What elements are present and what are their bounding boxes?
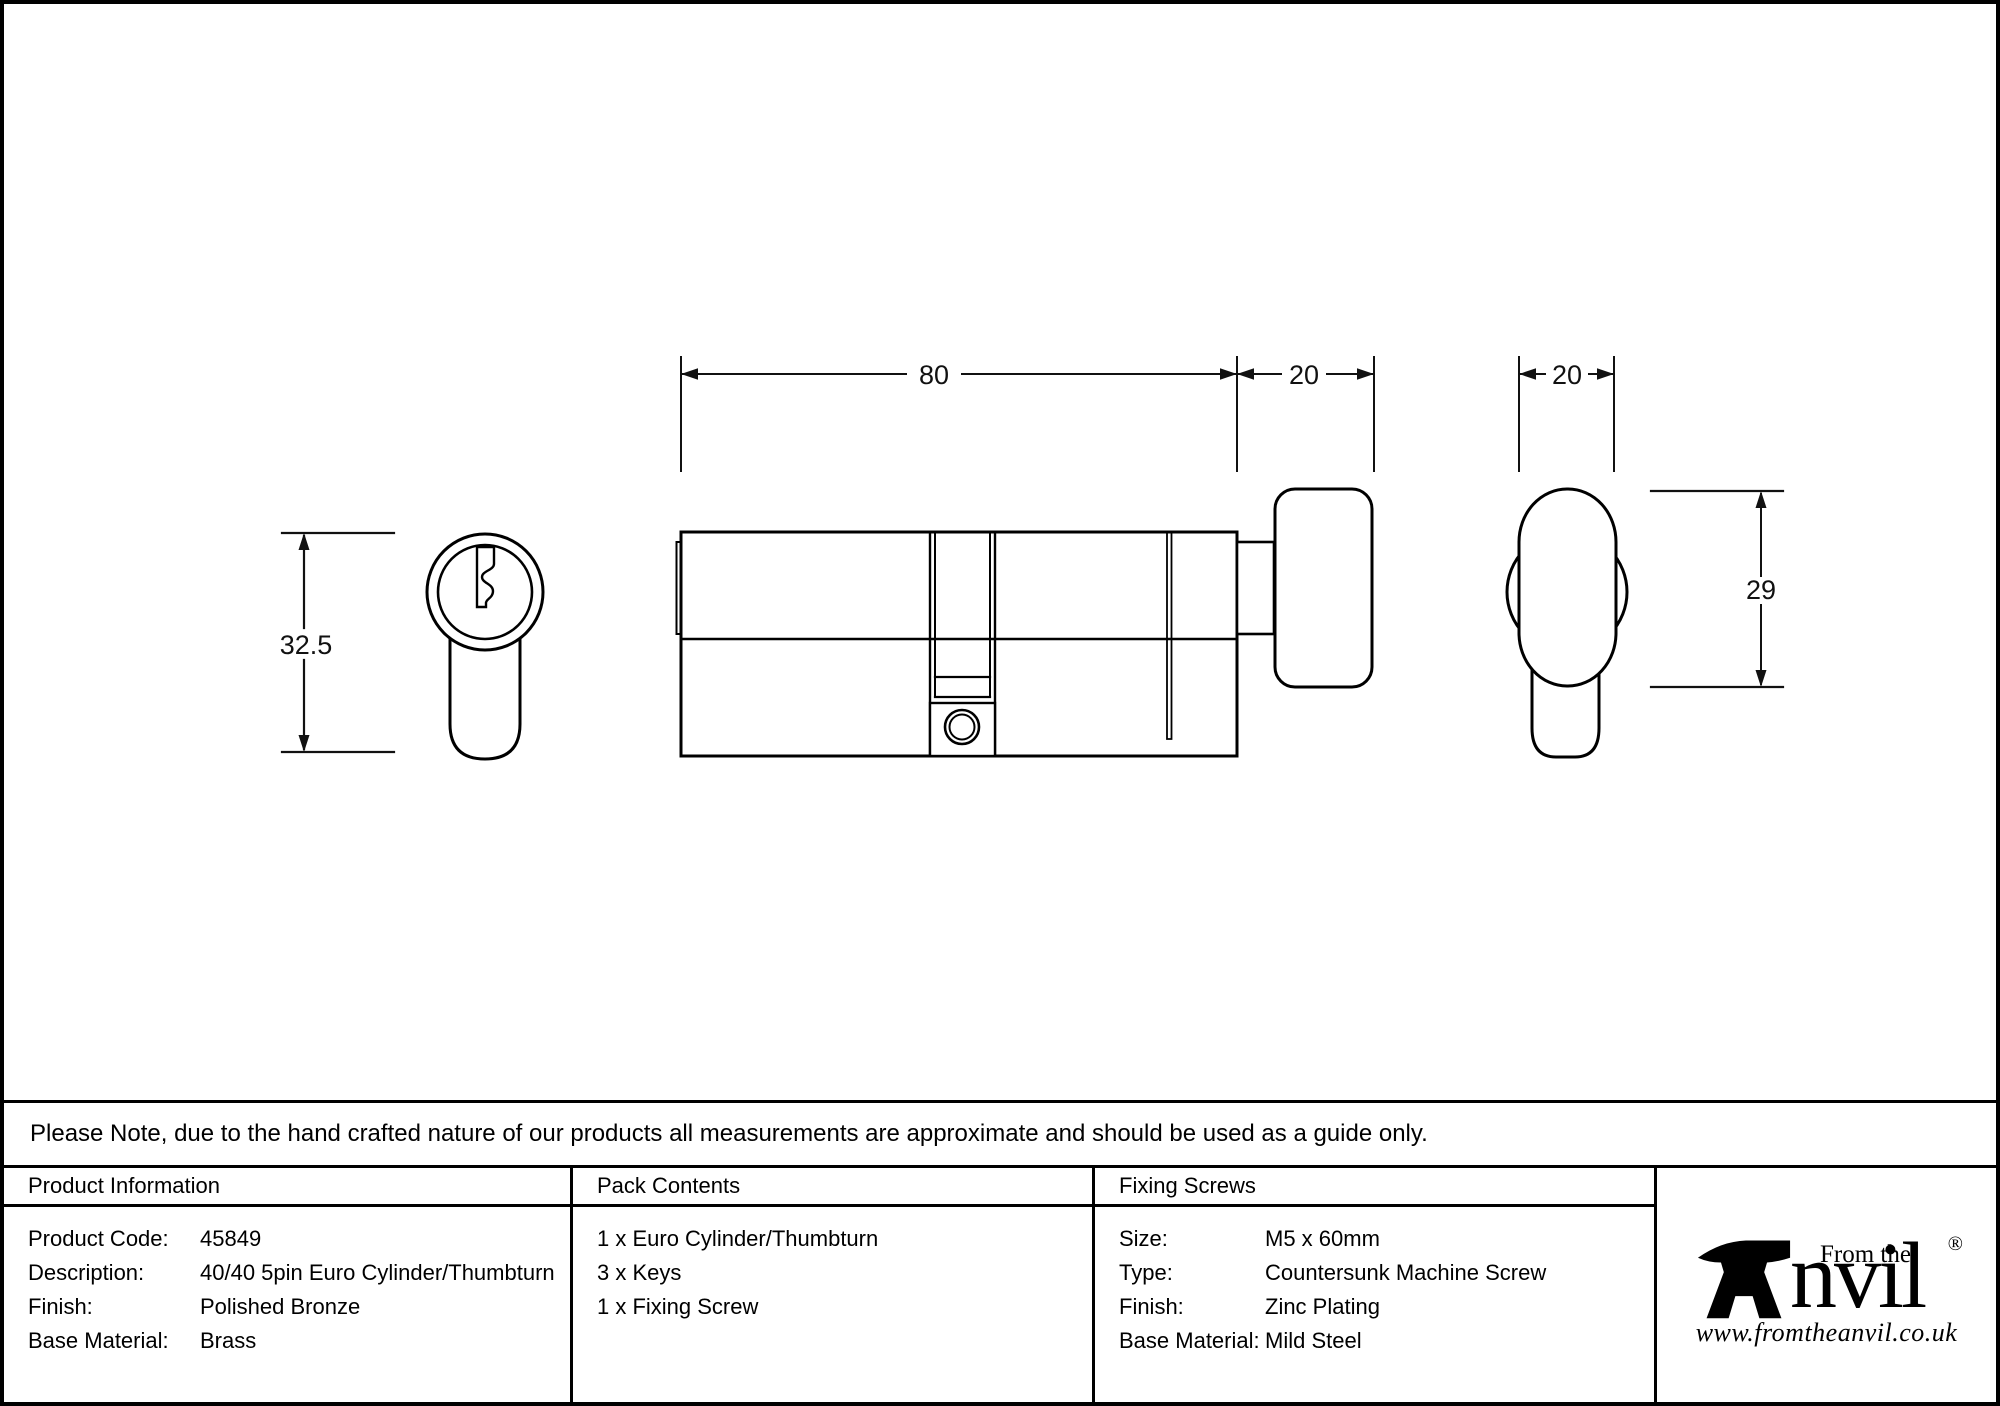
thumbturn-knob-side: [1275, 489, 1372, 687]
thumbturn-knob-front: [1519, 489, 1616, 686]
fixing-screws-column: Fixing Screws Size: M5 x 60mm Type: Coun…: [1095, 1168, 1657, 1402]
side-view-cylinder: [677, 489, 1373, 756]
row-value: Mild Steel: [1265, 1324, 1362, 1358]
table-row: Base Material: Brass: [28, 1324, 570, 1358]
brand-logo: From the nvil ® www.fromtheanvil.co.uk: [1694, 1221, 1959, 1349]
row-value: Zinc Plating: [1265, 1290, 1380, 1324]
row-label: Product Code:: [28, 1222, 200, 1256]
note-bar: Please Note, due to the hand crafted nat…: [4, 1100, 1996, 1168]
dim-label-front-height: 32.5: [280, 630, 333, 660]
note-text: Please Note, due to the hand crafted nat…: [30, 1120, 1428, 1148]
thumbturn-neck: [1237, 542, 1274, 634]
dim-body-length: 80 20: [681, 357, 1374, 471]
row-value: Polished Bronze: [200, 1290, 360, 1324]
row-value: M5 x 60mm: [1265, 1222, 1380, 1256]
product-information-column: Product Information Product Code: 45849 …: [4, 1168, 573, 1402]
dim-knob-height: 29: [1651, 491, 1783, 687]
pack-contents-header: Pack Contents: [573, 1168, 1092, 1207]
brand-website: www.fromtheanvil.co.uk: [1680, 1318, 1973, 1348]
row-label: Finish:: [28, 1290, 200, 1324]
spec-sheet: 32.5: [0, 0, 2000, 1406]
product-information-header: Product Information: [4, 1168, 570, 1207]
table-row: Base Material: Mild Steel: [1119, 1324, 1654, 1358]
row-value: Brass: [200, 1324, 256, 1358]
row-label: Size:: [1119, 1222, 1265, 1256]
row-label: Finish:: [1119, 1290, 1265, 1324]
table-row: Finish: Zinc Plating: [1119, 1290, 1654, 1324]
row-label: Base Material:: [28, 1324, 200, 1358]
dim-label-thumbturn-length: 20: [1289, 360, 1319, 390]
row-value: 45849: [200, 1222, 261, 1256]
front-view-euro-profile: [427, 534, 543, 759]
list-item: 1 x Euro Cylinder/Thumbturn: [597, 1222, 1092, 1256]
table-row: Type: Countersunk Machine Screw: [1119, 1256, 1654, 1290]
technical-drawing: 32.5: [4, 4, 1996, 1100]
row-value: Countersunk Machine Screw: [1265, 1256, 1546, 1290]
table-row: Description: 40/40 5pin Euro Cylinder/Th…: [28, 1256, 570, 1290]
brand-wordmark: nvil: [1790, 1235, 1924, 1318]
spec-table: Product Information Product Code: 45849 …: [4, 1168, 1996, 1402]
dim-label-knob-height: 29: [1746, 575, 1776, 605]
table-row: Finish: Polished Bronze: [28, 1290, 570, 1324]
row-label: Type:: [1119, 1256, 1265, 1290]
list-item: 3 x Keys: [597, 1256, 1092, 1290]
dim-front-height: 32.5: [280, 533, 394, 752]
table-row: Product Code: 45849: [28, 1222, 570, 1256]
dim-knob-width: 20: [1519, 357, 1614, 471]
dim-label-body-length: 80: [919, 360, 949, 390]
dim-label-knob-width: 20: [1552, 360, 1582, 390]
registered-trademark-icon: ®: [1948, 1233, 1963, 1256]
table-row: Size: M5 x 60mm: [1119, 1222, 1654, 1256]
row-label: Description:: [28, 1256, 200, 1290]
fixing-screws-header: Fixing Screws: [1095, 1168, 1654, 1207]
pack-contents-column: Pack Contents 1 x Euro Cylinder/Thumbtur…: [573, 1168, 1095, 1402]
thumbturn-front-view: [1507, 489, 1627, 757]
row-value: 40/40 5pin Euro Cylinder/Thumbturn: [200, 1256, 555, 1290]
anvil-icon: [1696, 1231, 1792, 1321]
row-label: Base Material:: [1119, 1324, 1265, 1358]
list-item: 1 x Fixing Screw: [597, 1290, 1092, 1324]
brand-logo-cell: From the nvil ® www.fromtheanvil.co.uk: [1657, 1168, 1996, 1402]
